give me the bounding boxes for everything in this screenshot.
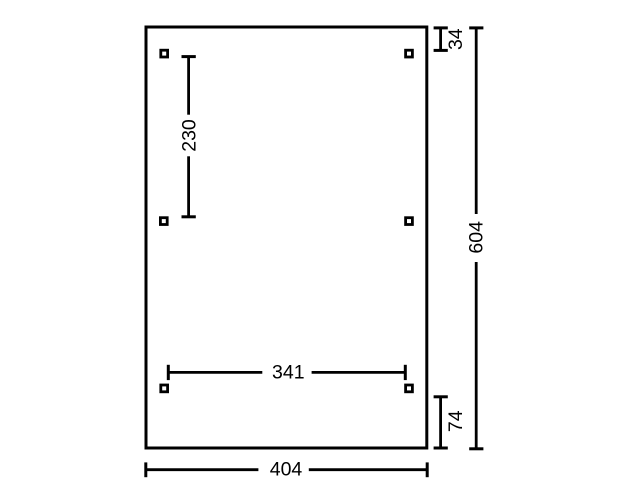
svg-text:34: 34 xyxy=(445,28,467,50)
svg-text:341: 341 xyxy=(272,361,305,383)
svg-text:404: 404 xyxy=(270,459,303,481)
svg-text:74: 74 xyxy=(445,410,467,432)
svg-text:604: 604 xyxy=(465,221,487,254)
svg-text:230: 230 xyxy=(178,119,200,152)
